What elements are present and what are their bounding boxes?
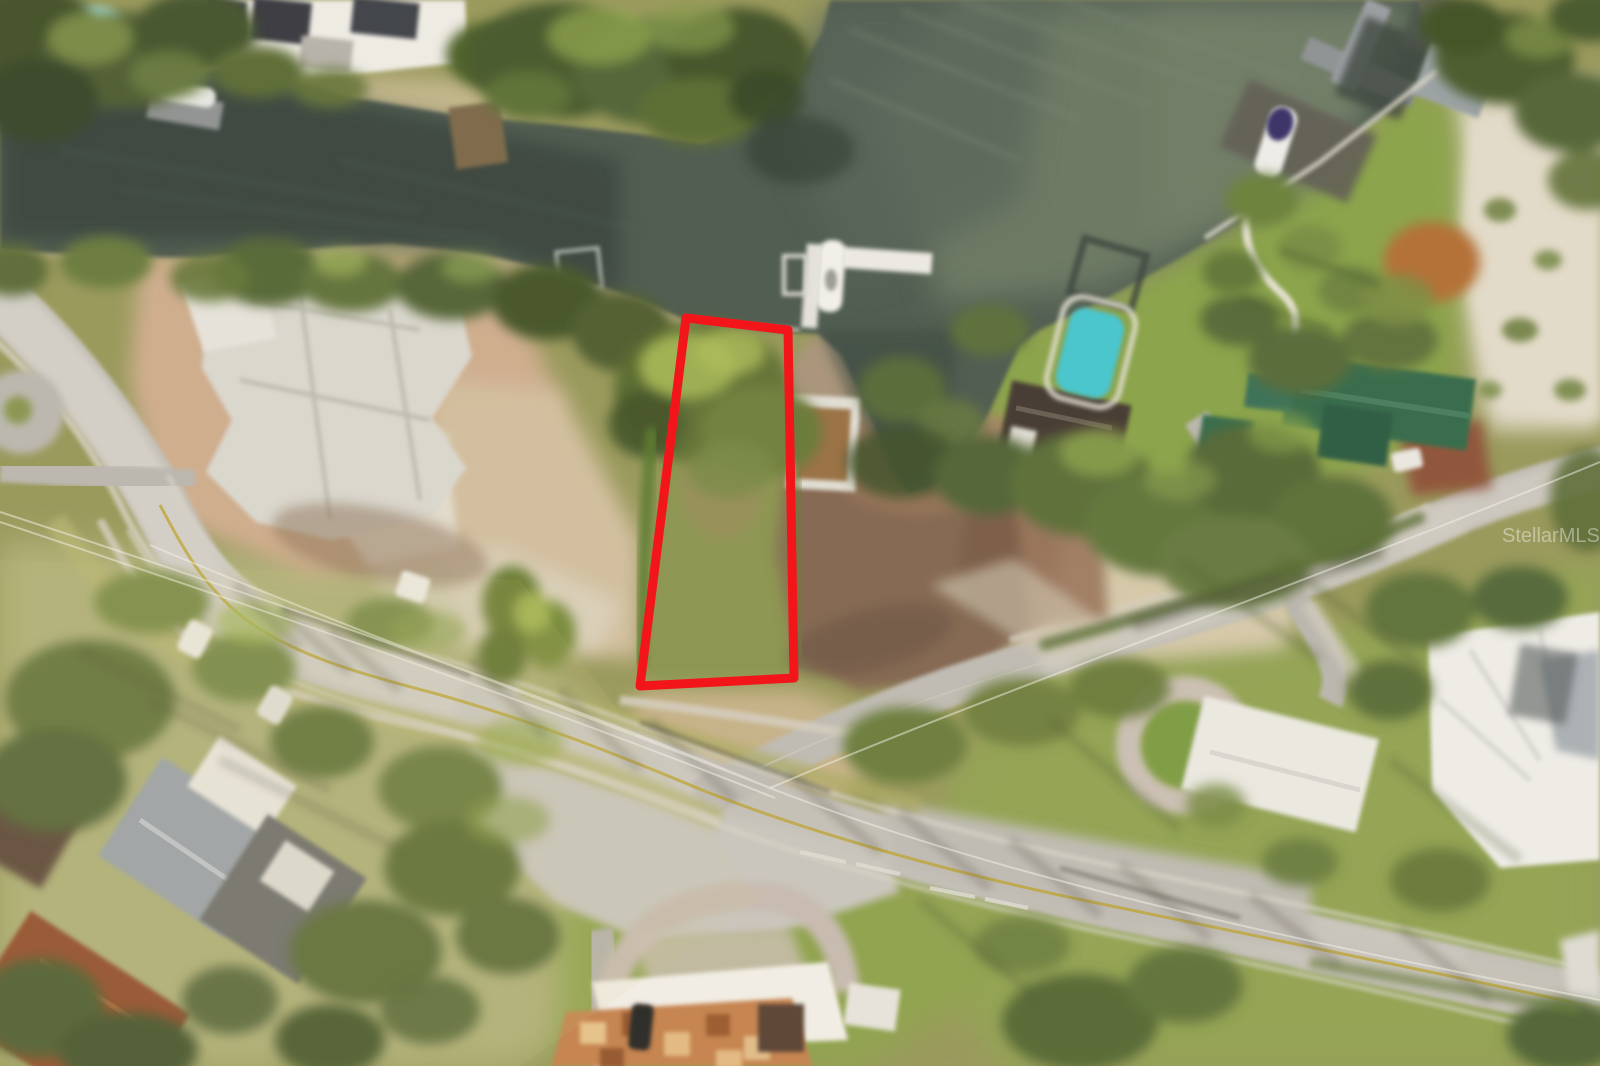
svg-text:StellarMLS: StellarMLS <box>1502 525 1600 547</box>
